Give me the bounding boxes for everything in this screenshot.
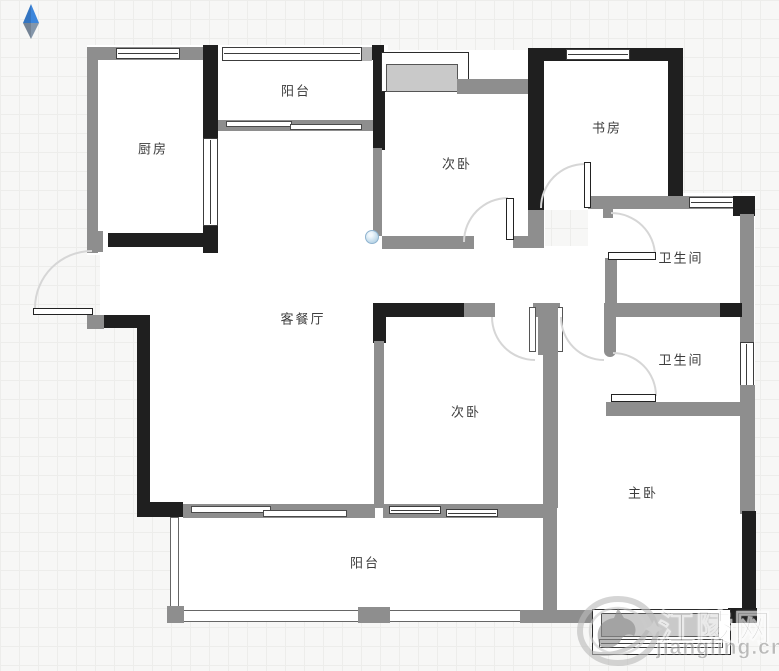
wall-segment	[203, 45, 218, 142]
wall-segment	[604, 317, 616, 357]
bay-window-sill	[601, 613, 719, 637]
room-fill-living-main	[137, 131, 545, 511]
wall-segment	[137, 315, 150, 517]
window	[389, 506, 441, 514]
wall-segment	[87, 47, 98, 253]
wall-segment	[520, 610, 596, 623]
room-fill-hallway	[440, 246, 610, 306]
wall-segment	[733, 196, 755, 216]
wall-segment	[740, 214, 754, 344]
wall-segment	[740, 385, 755, 514]
door-swing-arc	[34, 250, 92, 308]
window	[740, 342, 754, 387]
wall-segment	[528, 210, 544, 248]
wall-segment	[513, 236, 530, 248]
wall-segment	[464, 303, 495, 317]
window	[566, 49, 630, 60]
kitchen-door-window	[203, 138, 218, 226]
railing-post	[358, 607, 390, 623]
wall-segment	[137, 502, 183, 517]
sliding-door-panel	[263, 510, 347, 517]
wall-vertex-handle[interactable]	[365, 230, 379, 244]
balcony-railing	[176, 610, 526, 622]
room-label-balcony-bottom: 阳台	[350, 553, 380, 572]
wall-segment	[87, 315, 104, 329]
wall-segment	[605, 258, 617, 305]
sliding-door-panel	[191, 506, 271, 513]
wall-segment	[604, 303, 724, 317]
wall-segment	[382, 236, 474, 249]
window	[446, 509, 498, 517]
sliding-door-panel	[226, 121, 292, 127]
wall-segment	[373, 303, 466, 317]
wall-segment	[457, 79, 532, 94]
room-label-bedroom-top: 次卧	[442, 154, 472, 173]
balcony-railing	[170, 517, 179, 610]
window	[689, 197, 734, 208]
wall-segment	[373, 303, 386, 343]
entrance-door-leaf	[33, 308, 93, 315]
door-leaf	[584, 162, 591, 208]
railing-post	[167, 606, 184, 623]
wall-segment	[87, 231, 103, 252]
wall-segment	[528, 48, 544, 212]
wall-segment	[606, 402, 742, 416]
room-label-study: 书房	[592, 118, 622, 137]
wall-segment	[362, 47, 372, 61]
window	[222, 47, 362, 61]
room-label-master-bedroom: 主卧	[628, 483, 658, 502]
room-label-bathroom-2: 卫生间	[658, 350, 703, 369]
door-leaf	[611, 394, 656, 402]
wall-segment	[588, 196, 685, 209]
wall-segment	[543, 303, 558, 508]
wall-segment	[108, 233, 218, 247]
room-label-balcony-top: 阳台	[281, 81, 311, 100]
door-leaf	[506, 198, 514, 240]
wall-segment	[505, 504, 545, 518]
room-label-bathroom-1: 卫生间	[658, 248, 703, 267]
wall-segment	[720, 303, 742, 317]
north-arrow-icon	[22, 4, 40, 45]
window	[116, 48, 180, 59]
wall-segment	[668, 48, 683, 209]
wall-segment	[543, 505, 557, 615]
room-fill-master	[543, 303, 743, 613]
window	[599, 639, 723, 648]
room-label-living-dining: 客餐厅	[280, 309, 325, 328]
wall-segment	[373, 148, 382, 236]
room-label-kitchen: 厨房	[138, 139, 168, 158]
sliding-door-panel	[290, 124, 362, 130]
floorplan-canvas: 厨房 阳台 次卧 书房 卫生间 卫生间 客餐厅 次卧 主卧 阳台 江陵网 jia…	[0, 0, 779, 671]
wall-segment	[728, 608, 757, 623]
room-label-bedroom-bottom: 次卧	[451, 402, 481, 421]
wall-segment	[374, 341, 384, 508]
door-leaf	[608, 252, 656, 260]
wall-segment	[742, 511, 756, 611]
bay-window-sill	[386, 64, 458, 92]
